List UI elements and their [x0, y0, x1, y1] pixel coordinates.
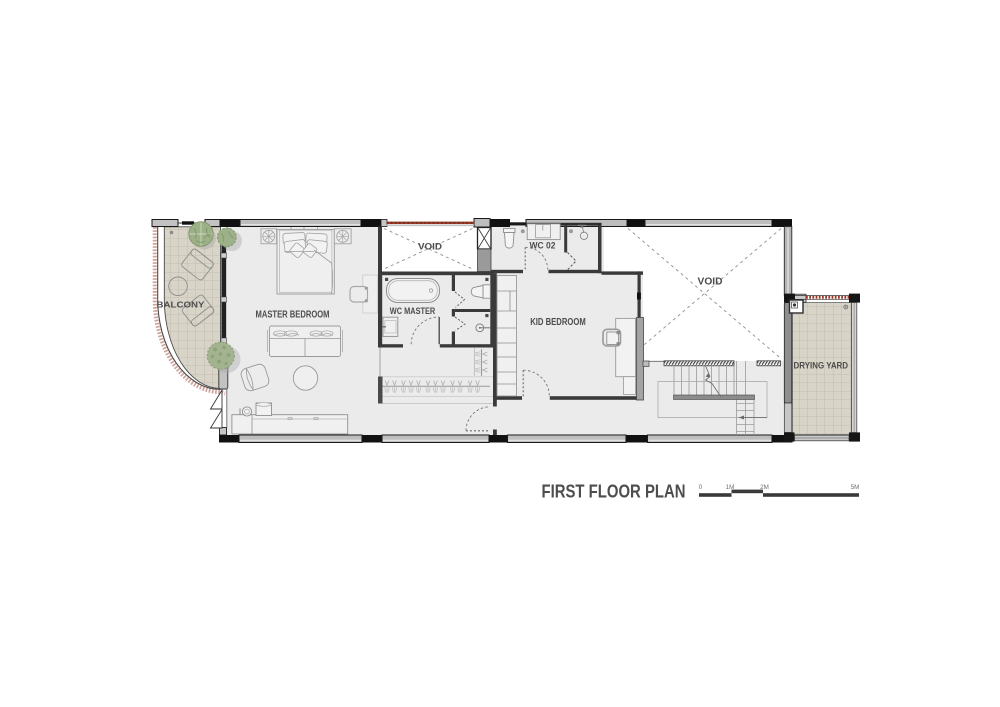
- svg-text:WC 02: WC 02: [530, 240, 556, 250]
- svg-text:VOID: VOID: [698, 277, 723, 288]
- svg-text:1M: 1M: [726, 484, 735, 491]
- svg-text:VOID: VOID: [418, 241, 442, 251]
- svg-text:FIRST FLOOR PLAN: FIRST FLOOR PLAN: [542, 480, 686, 501]
- svg-text:0: 0: [699, 484, 703, 491]
- svg-text:5M: 5M: [851, 484, 860, 491]
- svg-text:DRYING YARD: DRYING YARD: [794, 360, 849, 370]
- svg-text:MASTER BEDROOM: MASTER BEDROOM: [256, 309, 330, 320]
- svg-text:WC MASTER: WC MASTER: [390, 306, 436, 316]
- svg-text:2M: 2M: [760, 484, 769, 491]
- svg-text:BALCONY: BALCONY: [157, 300, 205, 310]
- svg-text:KID BEDROOM: KID BEDROOM: [530, 317, 586, 328]
